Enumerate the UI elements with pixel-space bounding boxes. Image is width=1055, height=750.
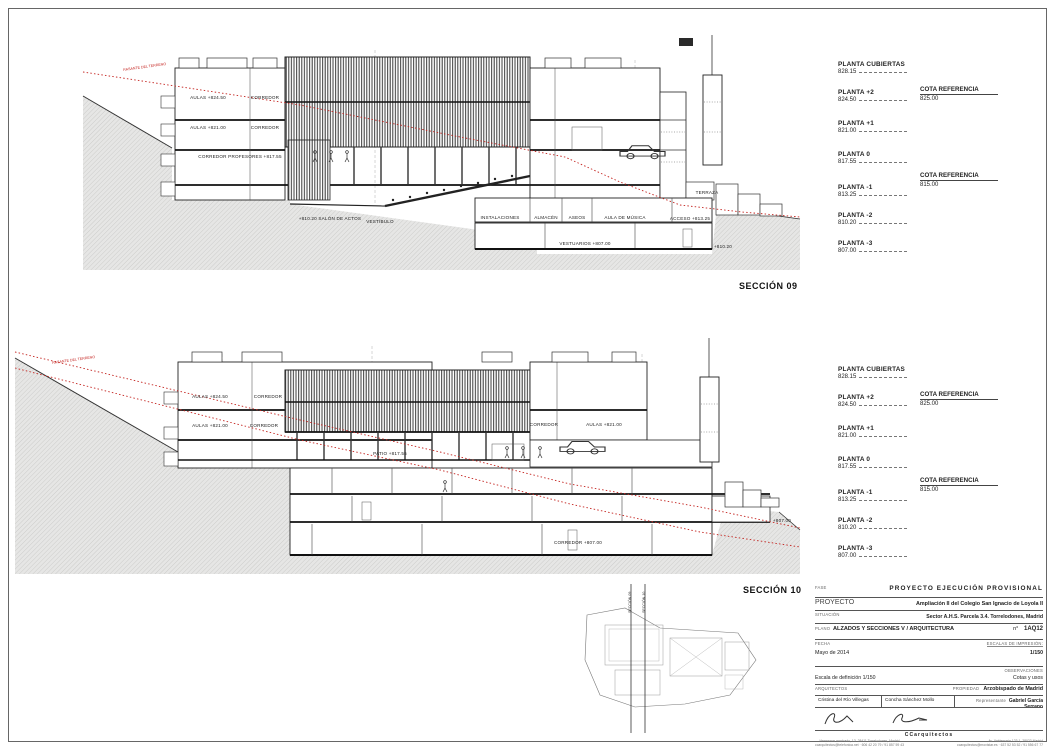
- level-row: PLANTA +1821.00: [838, 120, 998, 134]
- fase-value: PROYECTO EJECUCIÓN PROVISIONAL: [889, 585, 1043, 592]
- title-block-observaciones-row: OBSERVACIONES Escala de definición 1/150…: [815, 667, 1043, 685]
- drawing-sheet: RASANTE DEL TERRENO AULAS +824.50 CORRED…: [0, 0, 1055, 750]
- level-row: PLANTA +1821.00: [838, 425, 998, 439]
- firm-address-1: Hermanos machado, 13. 28411 Torrelodones…: [815, 739, 904, 747]
- site-key-plan-linework: [575, 580, 770, 740]
- room-label: CORREDOR: [254, 394, 282, 399]
- level-row: PLANTA -3807.00: [838, 545, 998, 559]
- escalas-value: 1/150: [1030, 650, 1043, 656]
- room-label: AULAS +821.00: [192, 423, 228, 428]
- cota-referencia: COTA REFERENCIA815.00: [920, 172, 998, 188]
- level-row: PLANTA CUBIERTAS828.15: [838, 61, 998, 75]
- fase-label: FASE: [815, 585, 827, 590]
- key-plan-section-10-label: SECCIÓN 10: [642, 592, 646, 613]
- signature-marks: [815, 708, 1043, 730]
- room-label: PATIO +817.55: [373, 451, 407, 456]
- cota-referencia: COTA REFERENCIA825.00: [920, 391, 998, 407]
- site-key-plan: SECCIÓN 09 SECCIÓN 10: [575, 580, 770, 740]
- room-label: +810.20 SALÓN DE ACTOS: [299, 216, 361, 221]
- levels-annotation-bottom: PLANTA CUBIERTAS828.15 PLANTA +2824.50 P…: [838, 357, 1048, 572]
- plano-number-value: 1AQ12: [1024, 626, 1043, 632]
- arquitectos-label: ARQUITECTOS: [815, 686, 847, 691]
- title-block-arquitectos-header: ARQUITECTOS PROPIEDAD Arzobispado de Mad…: [815, 685, 1043, 696]
- room-label: VESTUARIOS +807.00: [559, 241, 610, 246]
- plano-value: ALZADOS Y SECCIONES V / ARQUITECTURA: [833, 626, 954, 632]
- room-label: AULAS +824.50: [190, 95, 226, 100]
- plano-number-label: n°: [1013, 626, 1018, 632]
- representante-label: Representante: [976, 698, 1006, 703]
- room-label: CORREDOR +807.00: [554, 540, 602, 545]
- level-row: PLANTA -2810.20: [838, 517, 998, 531]
- propiedad-value: Arzobispado de Madrid: [983, 686, 1043, 692]
- title-block-fase-row: FASE PROYECTO EJECUCIÓN PROVISIONAL: [815, 583, 1043, 598]
- level-row: PLANTA CUBIERTAS828.15: [838, 366, 998, 380]
- room-label: CORREDOR: [251, 95, 279, 100]
- firm-name: CCarquitectos: [815, 731, 1043, 738]
- room-label: ASEOS: [569, 215, 586, 220]
- levels-annotation-top: PLANTA CUBIERTAS828.15 PLANTA +2824.50 P…: [838, 52, 1048, 267]
- room-label: ACCESO +813.25: [670, 216, 710, 221]
- room-label: +810.20: [714, 244, 732, 249]
- level-row: PLANTA -3807.00: [838, 240, 998, 254]
- room-label: ALMACÉN: [534, 215, 558, 220]
- escalas-label: ESCALAS DE IMPRESIÓN:: [987, 641, 1043, 647]
- room-label: CORREDOR PROFESORES +817.55: [198, 154, 281, 159]
- title-block-architect-names: Cristina del Río Villegas Concha Sánchez…: [815, 696, 1043, 708]
- room-label: CORREDOR: [250, 423, 278, 428]
- representante-value: Gabriel García Serrano: [1009, 698, 1043, 708]
- room-label: +807.00: [773, 518, 791, 523]
- level-row: PLANTA 0817.55: [838, 456, 998, 470]
- title-block-signatures: [815, 708, 1043, 731]
- situacion-label: SITUACIÓN: [815, 612, 840, 617]
- section-09-title: SECCIÓN 09: [739, 281, 798, 291]
- title-block: FASE PROYECTO EJECUCIÓN PROVISIONAL PROY…: [815, 583, 1043, 737]
- room-label: VESTÍBULO: [366, 219, 394, 224]
- section-10-linework: [12, 332, 832, 582]
- room-label: TERRAZA: [696, 190, 719, 195]
- situacion-value: Sector A.H.S. Parcela 3.4. Torrelodones,…: [926, 614, 1043, 620]
- room-label: AULAS +821.00: [190, 125, 226, 130]
- architect-2-name: Concha Sánchez Mollo: [882, 696, 955, 707]
- title-block-firm-footer: CCarquitectos Hermanos machado, 13. 2841…: [815, 731, 1043, 750]
- room-label: AULAS +824.50: [192, 394, 228, 399]
- room-label: CORREDOR: [251, 125, 279, 130]
- level-row: PLANTA -2810.20: [838, 212, 998, 226]
- level-row: PLANTA 0817.55: [838, 151, 998, 165]
- cota-referencia: COTA REFERENCIA815.00: [920, 477, 998, 493]
- section-09-drawing: RASANTE DEL TERRENO AULAS +824.50 CORRED…: [75, 32, 835, 282]
- architect-1-name: Cristina del Río Villegas: [815, 696, 882, 707]
- title-block-proyecto-row: PROYECTO Ampliación II del Colegio San I…: [815, 598, 1043, 611]
- title-block-plano-row: PLANO ALZADOS Y SECCIONES V / ARQUITECTU…: [815, 624, 1043, 640]
- fecha-label: FECHA: [815, 641, 830, 646]
- title-block-situacion-row: SITUACIÓN Sector A.H.S. Parcela 3.4. Tor…: [815, 611, 1043, 624]
- proyecto-label: PROYECTO: [815, 599, 854, 606]
- room-label: INSTALACIONES: [480, 215, 519, 220]
- title-block-fecha-row: FECHA ESCALAS DE IMPRESIÓN: Mayo de 2014…: [815, 640, 1043, 667]
- propiedad-label: PROPIEDAD: [953, 686, 979, 691]
- room-label: AULAS +821.00: [586, 422, 622, 427]
- fecha-value: Mayo de 2014: [815, 650, 849, 656]
- section-10-drawing: RASANTE DEL TERRENO AULAS +824.50 CORRED…: [12, 332, 832, 582]
- firm-address-2: Av. Valdemarín 123 1, 28023 Madridccarqu…: [957, 739, 1043, 747]
- observaciones-value: Cotas y usos: [1013, 675, 1043, 681]
- room-label: AULA DE MÚSICA: [604, 215, 645, 220]
- plano-label: PLANO: [815, 626, 830, 631]
- proyecto-value: Ampliación II del Colegio San Ignacio de…: [916, 601, 1043, 607]
- key-plan-section-09-label: SECCIÓN 09: [628, 592, 632, 613]
- cota-referencia: COTA REFERENCIA825.00: [920, 86, 998, 102]
- room-label: CORREDOR: [530, 422, 558, 427]
- escala-definicion: Escala de definición 1/150: [815, 675, 876, 681]
